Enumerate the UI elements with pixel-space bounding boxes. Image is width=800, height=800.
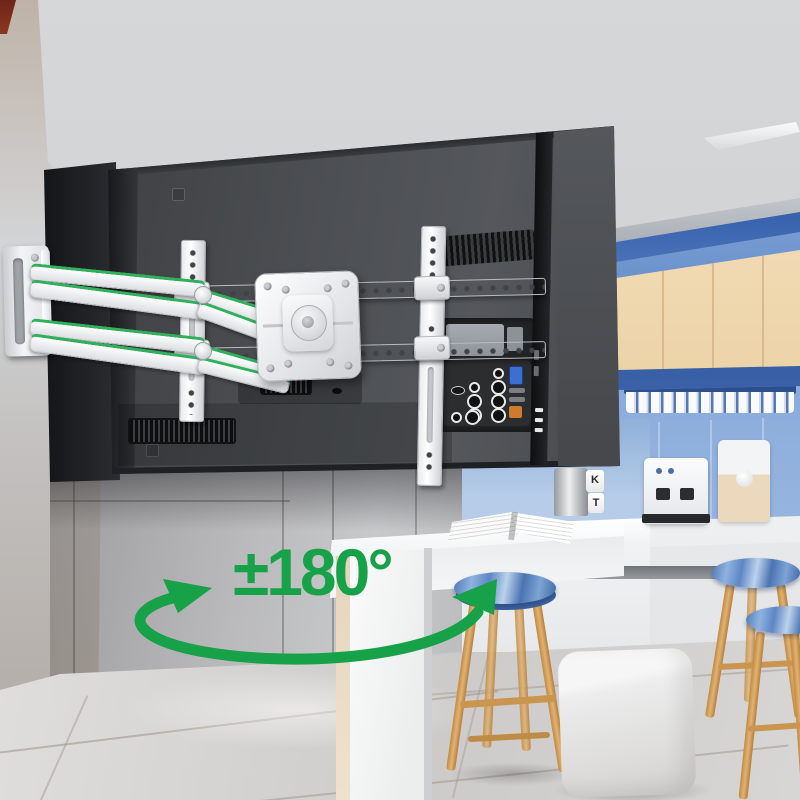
product-photo-scene: K T [0,0,800,800]
rotation-arc-graphic [0,0,800,800]
rotation-angle-label: ±180° [233,534,391,610]
